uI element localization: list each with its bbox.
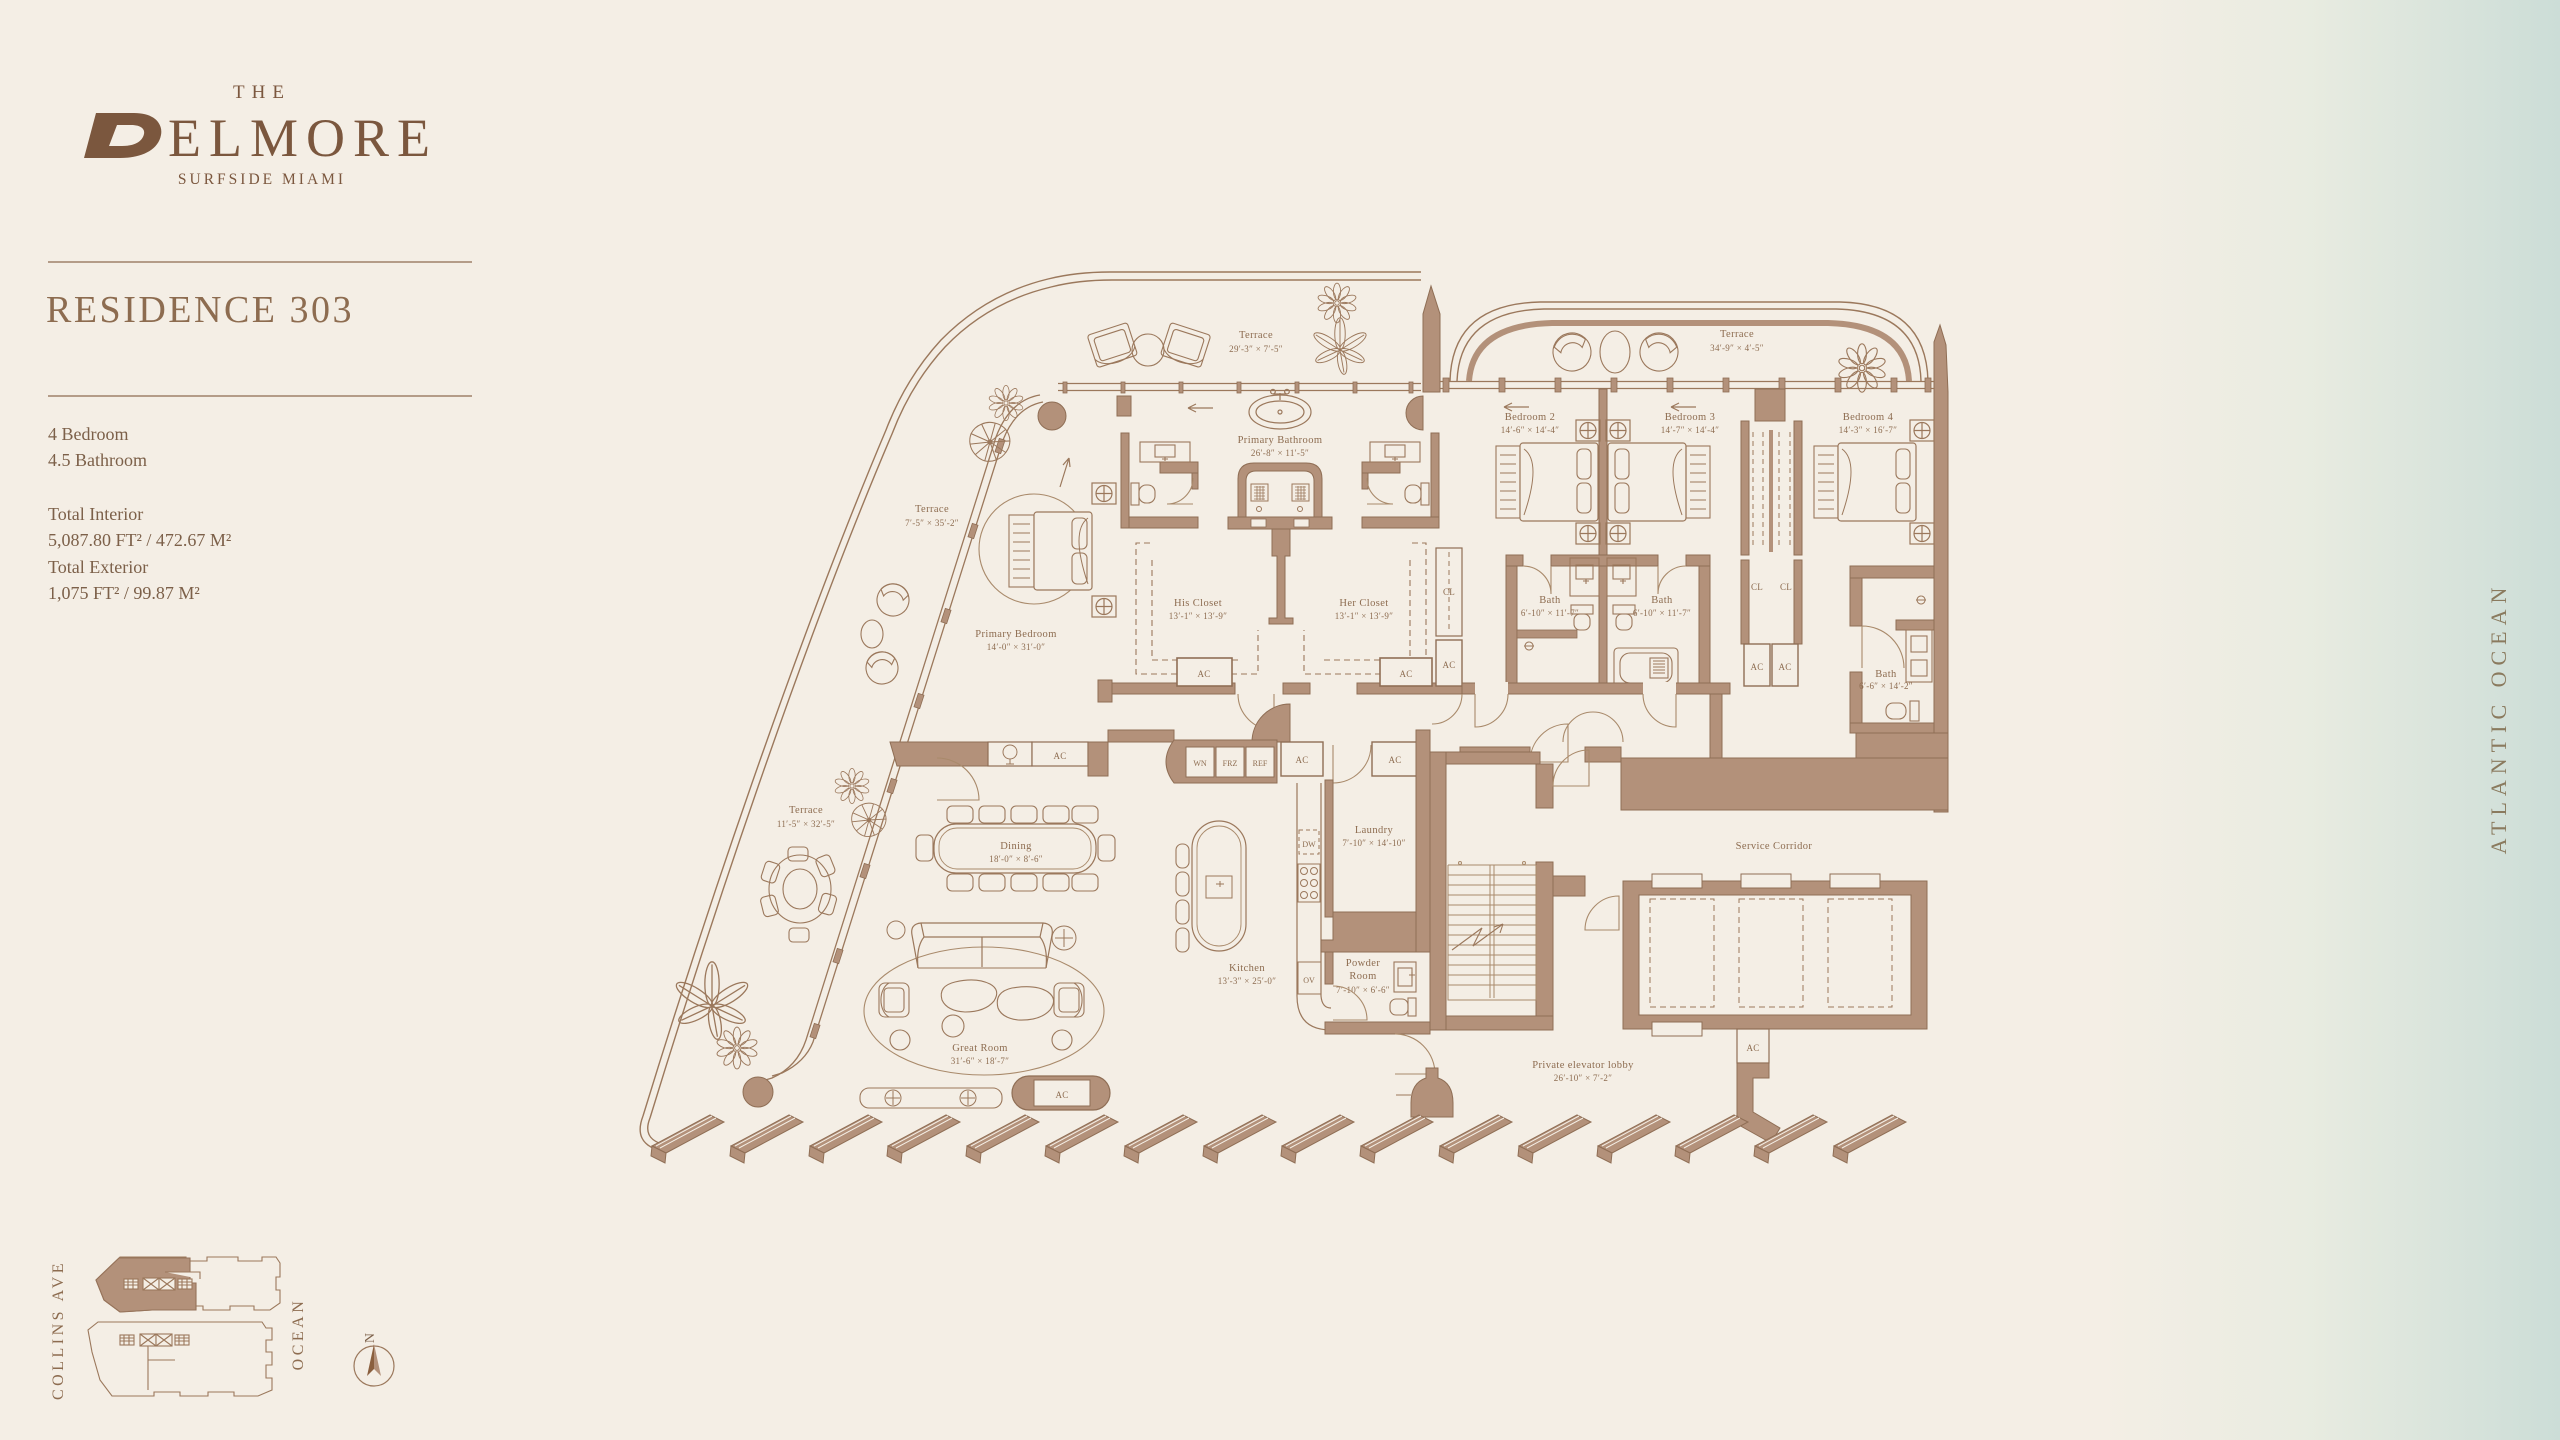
svg-text:29′-3″ × 7′-5″: 29′-3″ × 7′-5″ [1229, 344, 1283, 354]
svg-text:18′-0″ × 8′-6″: 18′-0″ × 8′-6″ [989, 854, 1043, 864]
svg-text:26′-8″ × 11′-5″: 26′-8″ × 11′-5″ [1251, 448, 1309, 458]
svg-text:6′-6″ × 14′-2″: 6′-6″ × 14′-2″ [1859, 681, 1913, 691]
svg-text:Kitchen: Kitchen [1229, 963, 1265, 974]
svg-text:13′-1″ × 13′-9″: 13′-1″ × 13′-9″ [1335, 611, 1394, 621]
svg-text:Primary Bedroom: Primary Bedroom [975, 629, 1057, 640]
svg-text:4 Bedroom: 4 Bedroom [48, 424, 129, 444]
svg-text:AC: AC [1197, 669, 1210, 679]
svg-text:Powder: Powder [1346, 958, 1381, 969]
svg-text:AC: AC [1750, 662, 1763, 672]
svg-text:7′-5″ × 35′-2″: 7′-5″ × 35′-2″ [905, 518, 959, 528]
svg-text:7′-10″ × 6′-6″: 7′-10″ × 6′-6″ [1336, 985, 1390, 995]
svg-text:N: N [363, 1333, 378, 1343]
svg-text:6′-10″ × 11′-7″: 6′-10″ × 11′-7″ [1633, 608, 1691, 618]
svg-text:4.5 Bathroom: 4.5 Bathroom [48, 450, 147, 470]
svg-text:13′-3″ × 25′-0″: 13′-3″ × 25′-0″ [1218, 976, 1277, 986]
svg-text:5,087.80 FT² / 472.67 M²: 5,087.80 FT² / 472.67 M² [48, 530, 231, 550]
svg-text:13′-1″ × 13′-9″: 13′-1″ × 13′-9″ [1169, 611, 1228, 621]
svg-text:WN: WN [1193, 759, 1207, 768]
svg-text:Terrace: Terrace [1239, 330, 1273, 341]
svg-text:REF: REF [1253, 759, 1268, 768]
svg-text:Primary Bathroom: Primary Bathroom [1238, 435, 1323, 446]
svg-text:Bath: Bath [1875, 669, 1897, 680]
svg-text:Room: Room [1349, 971, 1376, 982]
svg-text:Bath: Bath [1651, 595, 1673, 606]
svg-text:7′-10″ × 14′-10″: 7′-10″ × 14′-10″ [1342, 838, 1405, 848]
svg-text:34′-9″ × 4′-5″: 34′-9″ × 4′-5″ [1710, 343, 1764, 353]
svg-text:1,075 FT² / 99.87 M²: 1,075 FT² / 99.87 M² [48, 583, 200, 603]
svg-text:COLLINS AVE: COLLINS AVE [50, 1260, 67, 1400]
svg-text:AC: AC [1442, 660, 1455, 670]
svg-text:DW: DW [1302, 840, 1316, 849]
svg-text:14′-0″ × 31′-0″: 14′-0″ × 31′-0″ [987, 642, 1046, 652]
svg-text:Her Closet: Her Closet [1339, 598, 1388, 609]
svg-text:His Closet: His Closet [1174, 598, 1222, 609]
svg-text:Terrace: Terrace [1720, 329, 1754, 340]
svg-text:RESIDENCE 303: RESIDENCE 303 [46, 289, 354, 331]
svg-text:6′-10″ × 11′-7″: 6′-10″ × 11′-7″ [1521, 608, 1579, 618]
svg-text:ATLANTIC OCEAN: ATLANTIC OCEAN [2486, 582, 2511, 855]
svg-text:Terrace: Terrace [789, 805, 823, 816]
svg-text:Private elevator lobby: Private elevator lobby [1532, 1060, 1634, 1071]
svg-text:FRZ: FRZ [1223, 759, 1238, 768]
svg-text:Service Corridor: Service Corridor [1736, 841, 1813, 852]
svg-text:Great Room: Great Room [952, 1043, 1008, 1054]
svg-text:26′-10″ × 7′-2″: 26′-10″ × 7′-2″ [1554, 1073, 1613, 1083]
svg-text:Total Exterior: Total Exterior [48, 557, 148, 577]
svg-text:OCEAN: OCEAN [290, 1298, 307, 1371]
svg-text:31′-6″ × 18′-7″: 31′-6″ × 18′-7″ [951, 1056, 1010, 1066]
svg-text:14′-7″ × 14′-4″: 14′-7″ × 14′-4″ [1661, 425, 1720, 435]
svg-text:ELMORE: ELMORE [168, 108, 438, 168]
svg-text:OV: OV [1303, 976, 1315, 985]
svg-text:Bath: Bath [1539, 595, 1561, 606]
svg-text:14′-3″ × 16′-7″: 14′-3″ × 16′-7″ [1839, 425, 1898, 435]
svg-text:AC: AC [1746, 1043, 1759, 1053]
svg-text:CL: CL [1443, 587, 1455, 597]
svg-text:AC: AC [1055, 1090, 1068, 1100]
svg-text:Bedroom 4: Bedroom 4 [1843, 412, 1894, 423]
svg-text:Bedroom 3: Bedroom 3 [1665, 412, 1716, 423]
svg-text:SURFSIDE MIAMI: SURFSIDE MIAMI [178, 171, 346, 188]
svg-text:Total Interior: Total Interior [48, 504, 143, 524]
svg-text:Bedroom 2: Bedroom 2 [1505, 412, 1556, 423]
svg-text:11′-5″ × 32′-5″: 11′-5″ × 32′-5″ [777, 819, 835, 829]
svg-text:Terrace: Terrace [915, 504, 949, 515]
svg-text:Dining: Dining [1000, 841, 1032, 852]
svg-text:AC: AC [1778, 662, 1791, 672]
svg-text:AC: AC [1399, 669, 1412, 679]
svg-text:THE: THE [233, 82, 291, 103]
svg-text:14′-6″ × 14′-4″: 14′-6″ × 14′-4″ [1501, 425, 1560, 435]
svg-text:CL: CL [1780, 582, 1792, 592]
svg-text:AC: AC [1388, 755, 1401, 765]
svg-text:AC: AC [1053, 751, 1066, 761]
svg-text:CL: CL [1751, 582, 1763, 592]
svg-text:Laundry: Laundry [1355, 825, 1394, 836]
svg-text:AC: AC [1295, 755, 1308, 765]
